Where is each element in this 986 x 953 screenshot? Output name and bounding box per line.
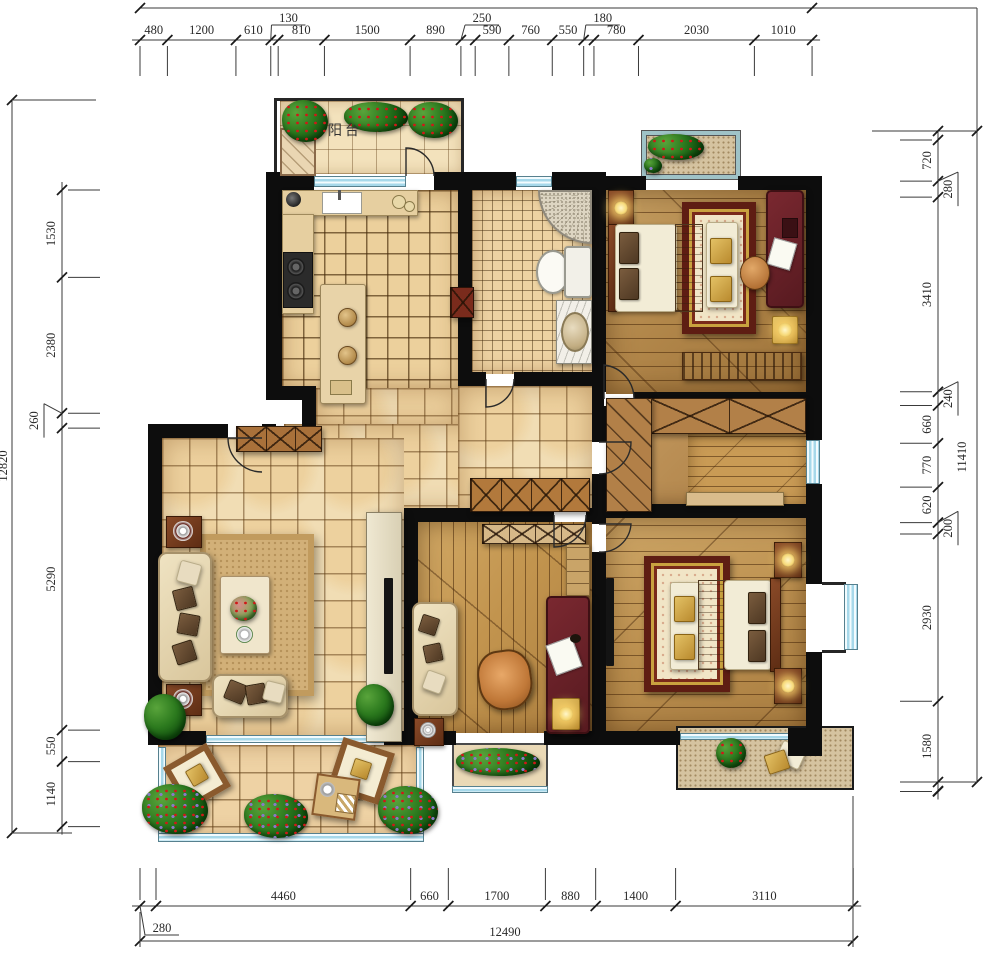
room-label-balcony: 阳台	[328, 120, 362, 140]
desk-cat	[570, 634, 581, 643]
nightstand	[608, 190, 634, 226]
floorplan-canvas: 阳台	[0, 0, 986, 953]
sofa-pillow	[176, 612, 200, 636]
bar-tray	[330, 380, 352, 395]
office-chair	[474, 647, 536, 714]
kitchen-sink	[322, 192, 362, 214]
kitchen-bowl	[404, 201, 415, 212]
balcony-plant	[408, 102, 458, 138]
baywindow-flowers	[456, 748, 540, 776]
balcony-plant	[282, 100, 328, 142]
vanity-basin	[561, 312, 589, 352]
table-flowers	[230, 596, 257, 621]
study-cabinet	[482, 524, 586, 544]
balcony-plant	[648, 134, 704, 160]
chaise-cushion	[674, 596, 695, 622]
bed-pillow	[619, 268, 639, 300]
kitchen-faucet	[338, 190, 341, 200]
toilet-tank	[564, 246, 592, 298]
tv	[606, 578, 614, 666]
plant	[144, 694, 186, 740]
bed-headboard	[770, 578, 781, 672]
desk-lamp	[772, 316, 798, 344]
stove-burner	[287, 258, 305, 276]
kitchen-pot	[286, 192, 301, 207]
bed-pillow	[748, 592, 766, 624]
chaise-cushion	[710, 276, 732, 302]
bed-blanket	[698, 580, 726, 670]
nightstand	[774, 668, 802, 704]
desk-monitor	[782, 218, 798, 238]
bed-pillow	[748, 630, 766, 662]
bar-stool	[338, 308, 357, 327]
wardrobe	[650, 398, 806, 434]
balcony-plant	[378, 786, 438, 834]
table-kettle	[320, 782, 335, 797]
nightstand	[774, 542, 802, 578]
bed-bench	[682, 352, 802, 380]
study-shelf	[566, 544, 590, 596]
shoe-cabinet	[236, 426, 322, 452]
sofa-pillow	[422, 642, 443, 663]
furniture-layer: 阳台	[0, 0, 986, 953]
stove-burner	[287, 282, 305, 300]
bed-blanket	[675, 224, 703, 312]
balcony-plant	[644, 158, 662, 173]
kitchen-crate-cabinet	[450, 287, 474, 318]
table-plate	[173, 521, 193, 541]
bed-pillow	[619, 232, 639, 264]
balcony-plant	[142, 784, 208, 834]
hall-cabinet	[470, 478, 590, 512]
plant	[356, 684, 394, 726]
tv	[384, 578, 393, 674]
chaise-cushion	[710, 238, 732, 264]
desk-chair	[740, 256, 770, 290]
duct-block	[788, 728, 822, 756]
wardrobe-corner	[606, 398, 652, 512]
table-tray	[236, 626, 253, 643]
closet-shelf	[686, 492, 784, 506]
balcony-plant	[716, 738, 746, 768]
chaise-cushion	[674, 634, 695, 660]
desk-lamp	[552, 698, 580, 730]
table-plate	[420, 722, 436, 738]
corner-shower	[538, 190, 592, 244]
bar-stool	[338, 346, 357, 365]
table-mat	[335, 793, 356, 814]
balcony-plant	[244, 794, 308, 838]
